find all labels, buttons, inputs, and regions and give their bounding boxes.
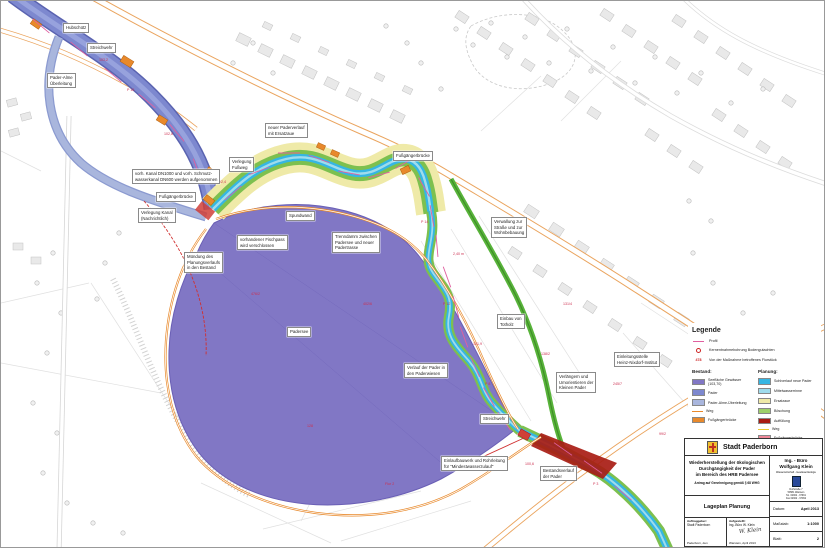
map-annotation: P 3 [593,483,598,487]
legend-item-label: Pader [708,391,718,395]
borehole-icon [692,348,705,354]
legend-symbol-label: Profil [709,339,717,343]
title-block-header: Stadt Paderborn [685,439,822,456]
map-callout: Einlaufbauwerk und Rohrleitung für "Mind… [441,456,508,471]
legend-item: Mittelwasserrinne [758,388,816,395]
legend-item: Pader [692,389,750,396]
legend-swatch [692,411,703,412]
map-callout: Padersee [287,327,311,337]
plan-name: Lageplan Planung [685,496,769,518]
plan-sheet: HubschützStreichwehrPader-Alme Überleitu… [0,0,825,548]
map-annotation: P 16 [127,89,134,93]
legend-swatch [758,388,771,395]
legend-item-label: Fußgängerbrücke [708,418,736,422]
legend-swatch [692,379,705,386]
date-row: Datum: April 2013 [770,502,822,517]
date-label: Datum: [773,507,785,511]
map-callout: Streichwehr [480,414,509,424]
legend-item: Sohlverlauf neue Pader [758,378,816,385]
scale-label: Maßstab: [773,522,789,526]
legend-swatch [758,398,771,405]
map-callout: Mündung des Planungsverlaufs in den Best… [184,252,223,273]
legend-item: Weg [758,427,816,431]
title-block: Stadt Paderborn Wiederherstellung der ök… [684,438,823,547]
map-callout: Fußgängerbrücke [393,151,433,161]
map-annotation: 138/2 [541,353,550,357]
map-callout: Verwallung zur Straße und zur Wohnbebauu… [491,217,527,238]
scale-row: Maßstab: 1:1000 [770,517,822,532]
office-address: Dorfstraße 7 59581 Warstein Tel. 02902 -… [770,488,822,500]
map-callout: Verlängern und Umorientieren der Kleinen… [556,372,596,393]
profile-line-icon [692,341,705,342]
client-cell: Auftraggeber: Stadt Paderborn Paderborn,… [685,518,727,546]
road-left-core [59,116,69,548]
legend-item-label: Auffüllung [774,419,790,423]
legend-item: Böschung [758,408,816,415]
legend-item-label: Ersatzaue [774,399,790,403]
office-name: Ing. - Büro Wolfgang Klein [770,458,822,470]
outlet-channel [520,431,669,548]
map-callout: Spundwand [286,211,315,221]
legend: Legende ProfilKernentnahmebohrung Bodeng… [688,323,821,435]
office-logo-icon [792,476,801,487]
legend-swatch [758,378,771,385]
map-annotation: 2,40 m [453,253,464,257]
legend-item-label: Böschung [774,409,790,413]
map-annotation: 99/2 [659,433,666,437]
map-annotation: 476/2 [251,293,260,297]
office-subtitle: Wasserwirtschaft - Gewässerökologie [770,471,822,474]
signature: W. Klein [739,527,762,535]
map-annotation: 245/7 [613,383,622,387]
map-callout: Bestandsverlauf der Pader [540,466,577,481]
author-cell: Aufgestellt: Ing.-Büro W. Klein W. Klein… [727,518,769,546]
legend-item-label: Seefläche Gewässer (103,70) [708,378,750,386]
legend-symbol-item: Kernentnahmebohrung Bodengutachten [692,348,821,354]
map-callout: Pader-Alme Überleitung [47,73,76,88]
legend-planung-items: Sohlverlauf neue PaderMittelwasserrinneE… [758,378,816,441]
sheet-value: 2 [817,537,819,541]
legend-item-label: Sohlverlauf neue Pader [774,379,812,383]
legend-swatch [692,389,705,396]
map-callout: Streichwehr [87,43,116,53]
map-callout: Verlauf der Pader in den Paderwiesen [404,363,448,378]
map-callout: Hubschütz [63,23,89,33]
office-cell: Ing. - Büro Wolfgang Klein Wasserwirtsch… [770,456,822,502]
client-value: Stadt Paderborn [687,523,724,527]
legend-item-label: Pader-Alme-Überleitung [708,401,747,405]
legend-bestand-title: Bestand: [692,369,750,374]
legend-swatch [692,399,705,406]
map-callout: vorhandener Fischpass wird verschlossen [237,235,288,250]
project-title: Wiederherstellung der ökologischen Durch… [685,460,769,478]
legend-symbols: ProfilKernentnahmebohrung Bodengutachten… [688,339,821,362]
legend-item-label: Weg [706,409,713,413]
map-annotation: 101,9 [473,343,482,347]
legend-swatch [692,417,705,424]
map-annotation: 128 [307,425,313,429]
legend-item: Auffüllung [758,418,816,425]
map-annotation: P 8 [485,383,490,387]
legend-symbol-label: Von der Maßnahme betroffenes Flurstück [709,358,777,362]
legend-swatch [758,418,771,425]
legend-item: Seefläche Gewässer (103,70) [692,378,750,386]
legend-planung-title: Planung: [758,369,816,374]
map-callout: Einbau von Totholz [497,314,525,329]
map-annotation: P 14 [421,221,428,225]
legend-item: Weg [692,409,750,413]
date-value: April 2013 [801,507,819,511]
legend-swatch [758,408,771,415]
city-name: Stadt Paderborn [723,444,777,451]
map-annotation: P 12 [443,303,450,307]
map-annotation: 102,8 [164,133,173,137]
map-callout: Trenndamm zwischen Padersee und neuer Pa… [332,232,380,253]
map-callout: neuer Paderverlauf mit Ersatzaue [265,123,308,138]
legend-symbol-label: Kernentnahmebohrung Bodengutachten [709,348,775,352]
legend-item-label: Weg [772,427,779,431]
map-callout: Verlegung Kanal (Nachrichtlich) [138,208,176,223]
project-title-cell: Wiederherstellung der ökologischen Durch… [685,456,769,496]
legend-symbol-item: 478Von der Maßnahme betroffenes Flurstüc… [692,358,821,362]
map-callout: vorh. Kanal DN1000 und vorh. Schmutz- wa… [132,169,220,184]
map-annotation: 131/4 [563,303,572,307]
map-annotation: 103,2 [99,59,108,63]
sheet-row: Blatt: 2 [770,532,822,546]
map-callout: Verlegung Fußweg [229,157,254,172]
map-annotation: 100,6 [525,463,534,467]
map-callout: Einleitungsstelle Heinz-Nixdorf-Institut [614,352,660,367]
client-place: Paderborn, den [687,541,708,545]
legend-item-label: Mittelwasserrinne [774,389,802,393]
sheet-label: Blatt: [773,537,782,541]
legend-item: Ersatzaue [758,398,816,405]
map-annotation: 402/6 [363,303,372,307]
legend-swatch [758,429,769,430]
legend-item: Pader-Alme-Überleitung [692,399,750,406]
legend-item: Fußgängerbrücke [692,417,750,424]
author-place: Warstein, April 2013 [729,541,756,545]
legend-title: Legende [692,327,821,334]
legend-symbol-item: Profil [692,339,821,343]
paderborn-coat-of-arms-icon [707,441,718,454]
scale-value: 1:1000 [807,522,819,526]
map-annotation: Flur 2 [385,483,394,487]
vegetation-outline [466,15,575,89]
parcel-icon: 478 [692,358,705,362]
map-callout: Fußgängerbrücke [156,192,196,202]
legend-bestand-items: Seefläche Gewässer (103,70)PaderPader-Al… [692,378,750,423]
approval-note: Antrag auf Genehmigung gemäß § 68 WHG [685,481,769,485]
